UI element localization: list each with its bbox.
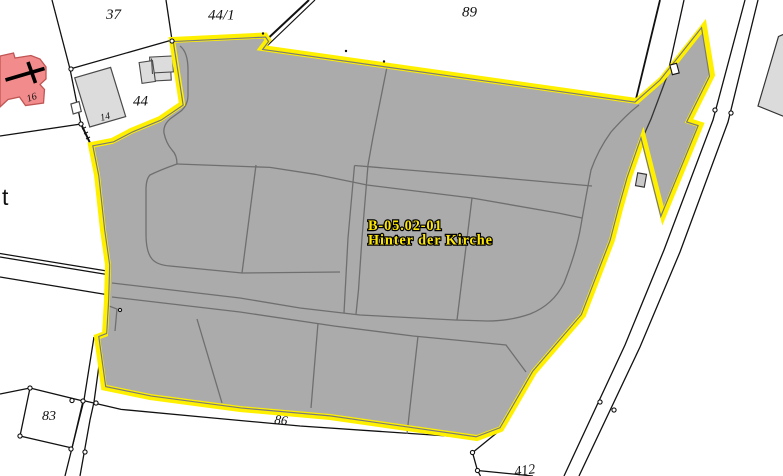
svg-text:t: t bbox=[2, 184, 9, 210]
svg-text:86: 86 bbox=[274, 412, 289, 429]
svg-text:Hinter der Kirche: Hinter der Kirche bbox=[368, 233, 493, 249]
svg-text:412: 412 bbox=[513, 462, 536, 476]
svg-text:83: 83 bbox=[42, 409, 56, 424]
svg-text:89: 89 bbox=[462, 5, 478, 21]
svg-text:44/1: 44/1 bbox=[208, 8, 235, 24]
svg-text:44: 44 bbox=[133, 94, 149, 110]
svg-text:37: 37 bbox=[105, 7, 123, 23]
